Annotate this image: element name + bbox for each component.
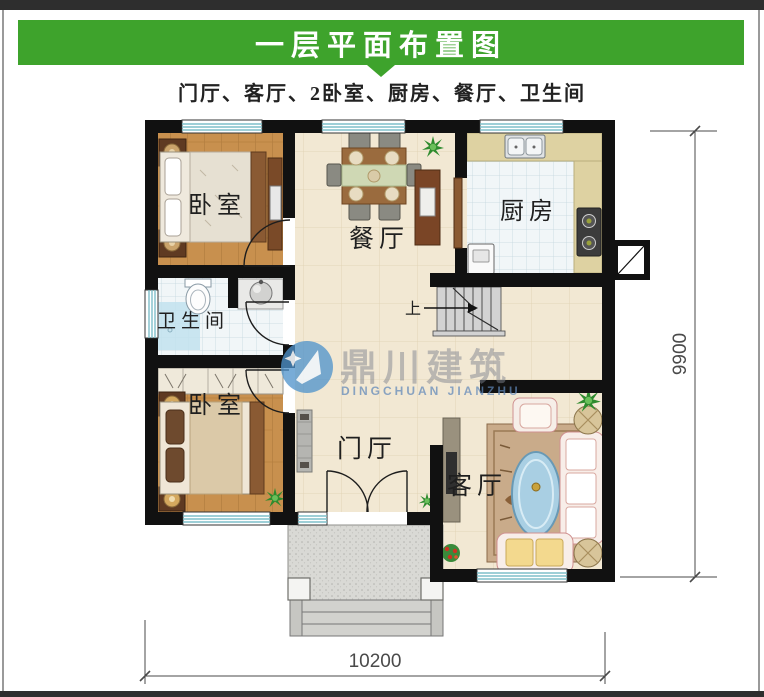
label-kitchen: 厨房 xyxy=(500,198,558,225)
label-foyer: 门厅 xyxy=(337,435,397,463)
floor-plan-page: 一层平面布置图 门厅、客厅、2卧室、厨房、餐厅、卫生间 xyxy=(0,0,764,697)
bed-footboard xyxy=(250,402,264,494)
page-bottom-border xyxy=(0,691,764,697)
bowl xyxy=(368,170,380,182)
plate xyxy=(349,151,363,165)
washbasin-icon xyxy=(250,282,272,304)
plate xyxy=(349,187,363,201)
window xyxy=(322,120,405,133)
label-stairs-up: 上 xyxy=(405,300,421,318)
wardrobe xyxy=(158,368,283,394)
pillow xyxy=(166,410,184,444)
window xyxy=(182,120,262,133)
label-bathroom: 卫生间 xyxy=(157,310,229,332)
window xyxy=(298,512,327,525)
porch-column-base xyxy=(288,578,310,600)
label-dining: 餐厅 xyxy=(349,225,409,253)
floor-plan-drawing: 鼎川建筑 DINGCHUAN JIANZHU 卧室 餐厅 厨房 卫生间 卧室 门… xyxy=(0,0,764,697)
plate xyxy=(385,187,399,201)
label-bedroom-top: 卧室 xyxy=(188,192,246,219)
watermark-en-text: DINGCHUAN JIANZHU xyxy=(341,384,521,398)
door-kitchen xyxy=(454,178,462,248)
window xyxy=(477,569,567,582)
dimension-width-label: 10200 xyxy=(349,651,402,672)
window xyxy=(480,120,563,133)
flower-plant-icon xyxy=(442,544,460,562)
dining-chair xyxy=(327,164,341,186)
window xyxy=(183,512,270,525)
tv-icon xyxy=(270,186,281,220)
dining-chair xyxy=(379,203,400,220)
dining-chair xyxy=(349,203,370,220)
pillow xyxy=(165,158,181,195)
entry-porch xyxy=(288,525,443,636)
watermark-cn-text: 鼎川建筑 xyxy=(340,347,512,389)
dimension-height-label: 9900 xyxy=(670,333,691,375)
watermark: 鼎川建筑 DINGCHUAN JIANZHU xyxy=(281,341,521,398)
dining-chair xyxy=(349,132,370,149)
pillow xyxy=(165,199,181,236)
plate xyxy=(385,151,399,165)
porch-steps xyxy=(290,600,443,636)
pillow xyxy=(166,448,184,482)
label-bedroom-bottom: 卧室 xyxy=(188,392,246,419)
label-living: 客厅 xyxy=(447,472,507,500)
dining-chair xyxy=(379,132,400,149)
